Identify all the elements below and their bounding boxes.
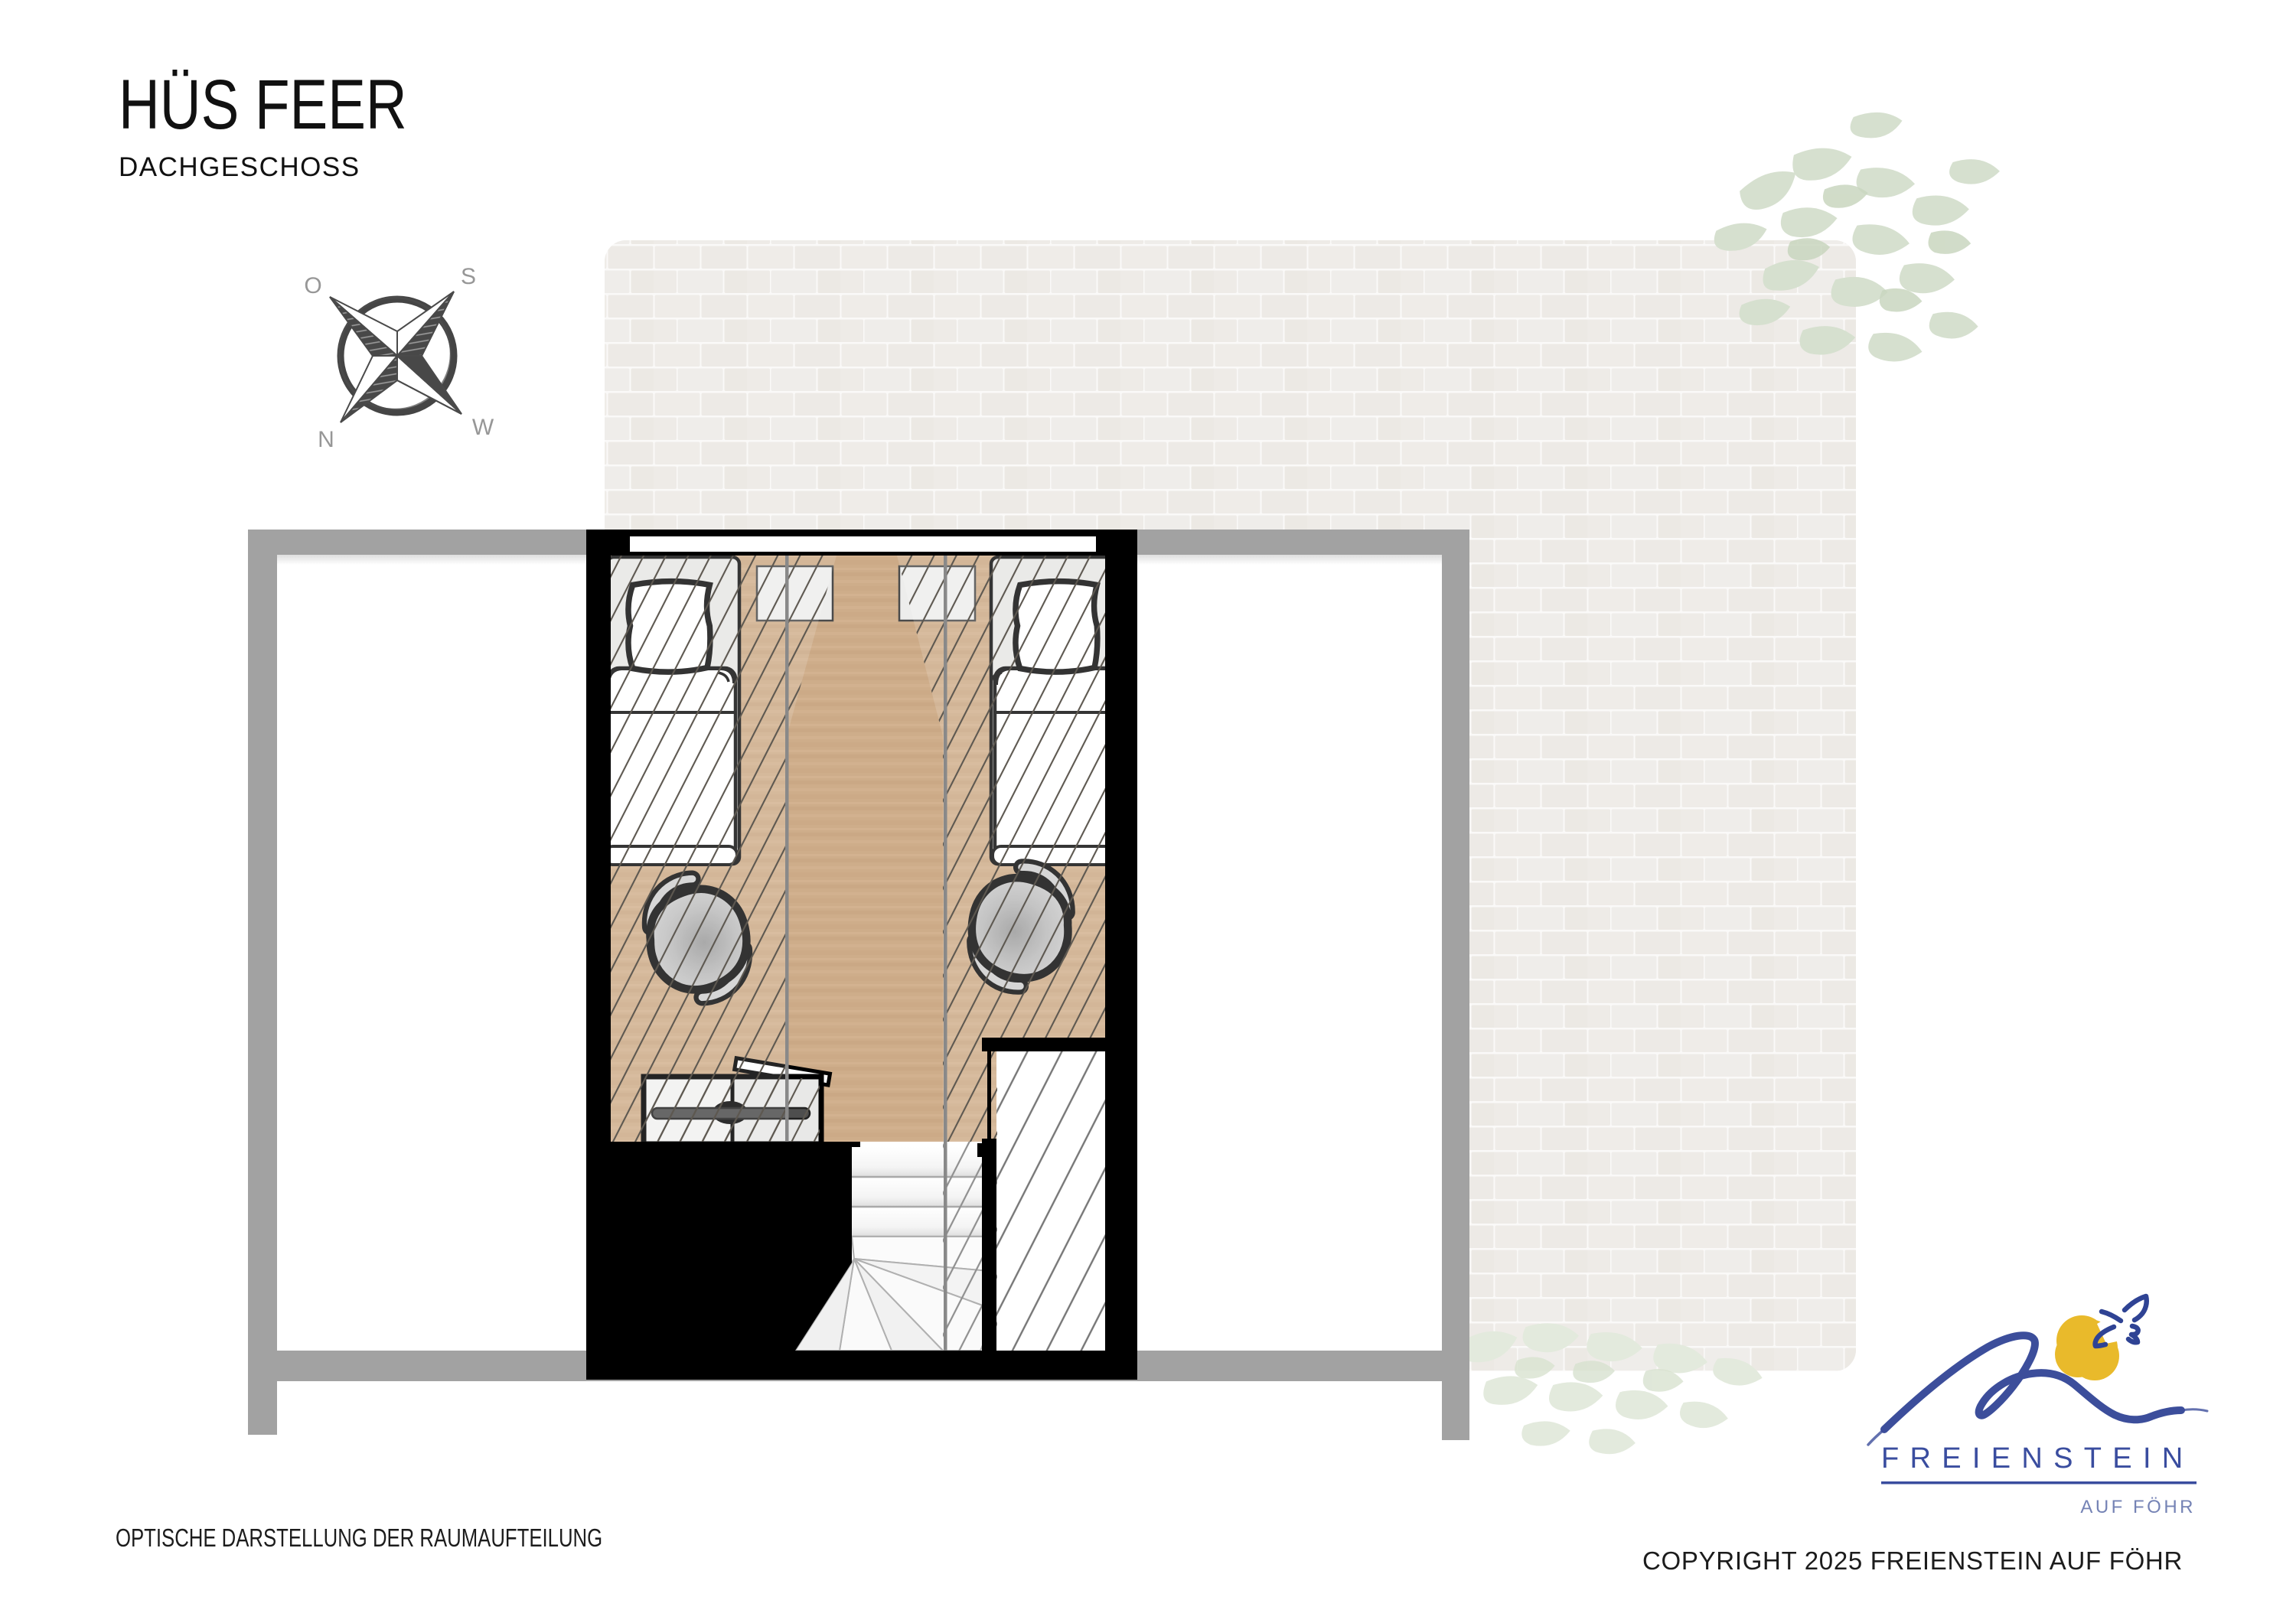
svg-text:O: O xyxy=(304,273,321,298)
svg-text:S: S xyxy=(461,264,476,289)
svg-text:N: N xyxy=(318,427,334,452)
svg-text:OPTISCHE DARSTELLUNG DER RAUMA: OPTISCHE DARSTELLUNG DER RAUMAUFTEILUNG xyxy=(116,1524,602,1553)
svg-text:COPYRIGHT 2025 FREIENSTEIN AUF: COPYRIGHT 2025 FREIENSTEIN AUF FÖHR xyxy=(1642,1546,2183,1575)
svg-text:FREIENSTEIN: FREIENSTEIN xyxy=(1881,1442,2194,1475)
svg-text:AUF FÖHR: AUF FÖHR xyxy=(2080,1497,2196,1517)
svg-text:DACHGESCHOSS: DACHGESCHOSS xyxy=(119,152,360,182)
svg-text:HÜS FEER: HÜS FEER xyxy=(119,64,407,143)
svg-text:W: W xyxy=(472,415,494,440)
